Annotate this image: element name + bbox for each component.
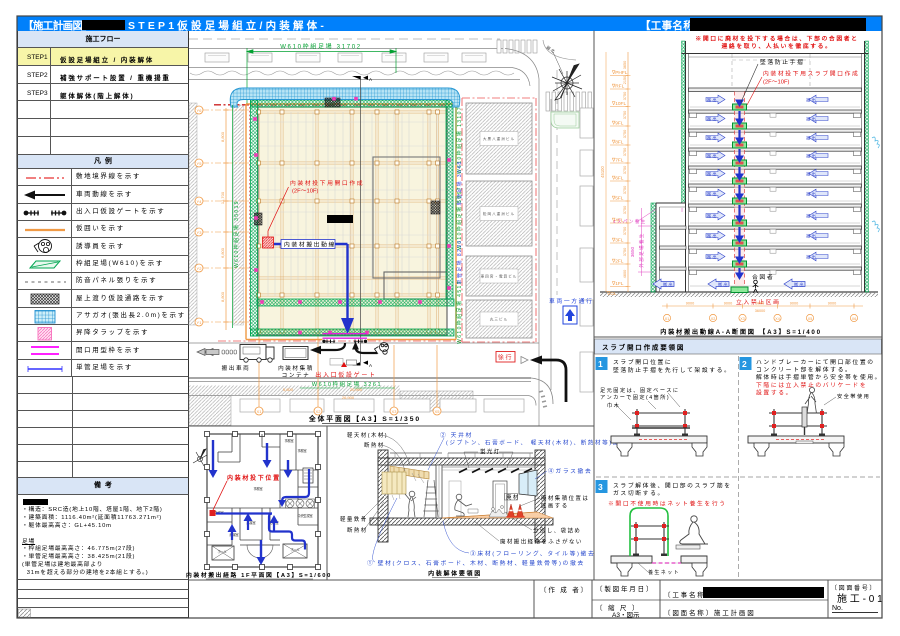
svg-text:12,700: 12,700 xyxy=(220,191,225,204)
svg-text:④ガラス撤去: ④ガラス撤去 xyxy=(548,467,592,475)
svg-text:搬出: 搬出 xyxy=(806,170,817,177)
svg-text:X5: X5 xyxy=(808,317,812,321)
svg-text:X5: X5 xyxy=(435,409,441,414)
svg-text:搬出: 搬出 xyxy=(806,134,817,141)
svg-text:ハンドブレーカーにて開口部位置の: ハンドブレーカーにて開口部位置の xyxy=(756,358,875,366)
svg-text:∇1FL: ∇1FL xyxy=(611,281,624,287)
svg-text:大黒八重洲ビル: 大黒八重洲ビル xyxy=(483,136,515,141)
svg-text:W610枠組足場 35019: W610枠組足場 35019 xyxy=(233,200,240,268)
svg-text:搬出車両: 搬出車両 xyxy=(222,364,251,372)
svg-text:スラブ開口作成要領図: スラブ開口作成要領図 xyxy=(602,343,685,352)
svg-text:ガス切断する。: ガス切断する。 xyxy=(613,489,665,497)
svg-text:搬出: 搬出 xyxy=(707,170,718,177)
svg-text:墜落防止手摺: 墜落防止手摺 xyxy=(760,58,805,66)
svg-text:2150: 2150 xyxy=(623,76,627,84)
svg-text:軽量鉄骨: 軽量鉄骨 xyxy=(340,515,368,523)
svg-text:2: 2 xyxy=(742,359,749,369)
svg-text:連絡を取り、人払いを徹底する。: 連絡を取り、人払いを徹底する。 xyxy=(721,42,832,50)
svg-text:② 天井材: ② 天井材 xyxy=(440,431,473,439)
svg-text:スラブ解体後、開口部のスラブ筋を: スラブ解体後、開口部のスラブ筋を xyxy=(613,482,732,490)
svg-text:区画する: 区画する xyxy=(541,503,569,510)
svg-text:単管足場 8230: 単管足場 8230 xyxy=(456,239,463,284)
svg-text:∇4FL: ∇4FL xyxy=(611,218,624,224)
svg-text:3650: 3650 xyxy=(630,246,635,257)
svg-text:出入口仮設ゲート: 出入口仮設ゲート xyxy=(315,371,376,379)
svg-text:徐行: 徐行 xyxy=(498,354,513,362)
svg-text:搬出: 搬出 xyxy=(806,152,817,159)
svg-text:1: 1 xyxy=(598,359,605,369)
svg-text:軽天材(木材): 軽天材(木材) xyxy=(347,431,388,439)
svg-text:搬出: 搬出 xyxy=(707,212,718,219)
svg-text:∇9FL: ∇9FL xyxy=(611,121,624,127)
svg-text:X6: X6 xyxy=(852,317,856,321)
svg-text:搬出: 搬出 xyxy=(718,281,729,288)
svg-text:コンテナ: コンテナ xyxy=(282,372,311,379)
svg-text:∇PHFL: ∇PHFL xyxy=(611,70,628,76)
svg-text:搬出: 搬出 xyxy=(707,190,718,197)
svg-text:搬出: 搬出 xyxy=(806,253,817,260)
svg-text:内装材搬出経路 1F平面図【A3】S=1/600: 内装材搬出経路 1F平面図【A3】S=1/600 xyxy=(186,571,332,579)
svg-text:(2F〜10F): (2F〜10F) xyxy=(763,80,789,86)
svg-text:X1: X1 xyxy=(257,409,263,414)
svg-text:9000: 9000 xyxy=(828,302,836,306)
svg-text:※開口不使用時はネット養生を行う: ※開口不使用時はネット養生を行う xyxy=(608,500,727,508)
svg-text:① 壁材(クロス、石膏ボード、木材、断熱材、軽量鉄骨等)の撤: ① 壁材(クロス、石膏ボード、木材、断熱材、軽量鉄骨等)の撤去 xyxy=(367,559,585,567)
svg-text:3750: 3750 xyxy=(623,130,627,138)
svg-text:Y2: Y2 xyxy=(197,266,203,271)
svg-text:搬出: 搬出 xyxy=(707,134,718,141)
svg-text:Y1: Y1 xyxy=(197,320,203,325)
svg-text:断熱材: 断熱材 xyxy=(347,526,368,534)
svg-text:搬出: 搬出 xyxy=(806,232,817,239)
svg-text:∇3FL: ∇3FL xyxy=(611,238,624,244)
svg-text:廃材集積位置は: 廃材集積位置は xyxy=(541,494,589,502)
svg-text:内装材搬出動線: 内装材搬出動線 xyxy=(284,241,336,249)
svg-text:3750: 3750 xyxy=(623,148,627,156)
svg-text:丸三ビル: 丸三ビル xyxy=(490,317,508,322)
svg-text:3750: 3750 xyxy=(623,248,627,256)
svg-text:X1: X1 xyxy=(665,317,669,321)
svg-text:スラブ開口位置に: スラブ開口位置に xyxy=(613,358,672,366)
svg-text:3750: 3750 xyxy=(623,92,627,100)
svg-text:事務室: 事務室 xyxy=(254,486,263,491)
svg-text:3: 3 xyxy=(598,482,605,492)
svg-text:A: A xyxy=(369,363,372,368)
svg-text:設置する。: 設置する。 xyxy=(756,389,793,397)
svg-text:内装材搬出動線A-A断面図 【A3】S=1/400: 内装材搬出動線A-A断面図 【A3】S=1/400 xyxy=(660,328,822,336)
svg-text:(2F〜10F): (2F〜10F) xyxy=(292,189,318,195)
svg-text:(ジプトン、石膏ボード、 軽天材(木材)、断熱材等)撤去: (ジプトン、石膏ボード、 軽天材(木材)、断熱材等)撤去 xyxy=(446,439,627,447)
svg-text:東四宮・電算ビル: 東四宮・電算ビル xyxy=(481,274,518,279)
svg-text:搬出: 搬出 xyxy=(707,96,718,103)
svg-text:車両一方通行: 車両一方通行 xyxy=(549,297,594,305)
svg-text:A: A xyxy=(369,77,372,82)
svg-text:搬出: 搬出 xyxy=(707,253,718,260)
svg-text:∇6FL: ∇6FL xyxy=(611,176,624,182)
svg-text:養生ネット: 養生ネット xyxy=(648,569,680,576)
svg-text:松岡八重洲ビル: 松岡八重洲ビル xyxy=(483,211,515,216)
svg-text:※開口に廃材を投下する場合は、下部の合図者と: ※開口に廃材を投下する場合は、下部の合図者と xyxy=(695,35,858,43)
svg-text:8,800: 8,800 xyxy=(220,131,225,142)
svg-text:内装解体要領図: 内装解体要領図 xyxy=(428,570,482,578)
svg-text:∇10FL: ∇10FL xyxy=(611,101,626,107)
svg-text:3750: 3750 xyxy=(623,111,627,119)
svg-text:3750: 3750 xyxy=(623,227,627,235)
svg-text:内装材集積: 内装材集積 xyxy=(278,364,314,372)
svg-text:9000: 9000 xyxy=(724,302,732,306)
svg-text:搬出: 搬出 xyxy=(806,115,817,122)
svg-text:3750: 3750 xyxy=(623,166,627,174)
svg-text:巾木: 巾木 xyxy=(607,401,620,409)
svg-text:墜落防止手摺を先行して架設する。: 墜落防止手摺を先行して架設する。 xyxy=(613,366,732,374)
svg-text:全体平面図【A3】S=1/350: 全体平面図【A3】S=1/350 xyxy=(308,414,421,423)
svg-text:事務室: 事務室 xyxy=(285,438,294,443)
svg-text:ホール: ホール xyxy=(291,547,301,552)
svg-text:搬出: 搬出 xyxy=(806,96,817,103)
svg-text:内装材投下用スラブ開口作成: 内装材投下用スラブ開口作成 xyxy=(763,70,859,78)
svg-text:3650: 3650 xyxy=(623,61,627,69)
svg-text:Y3: Y3 xyxy=(197,230,203,235)
svg-text:∇8FL: ∇8FL xyxy=(611,140,624,146)
svg-text:給湯室: 給湯室 xyxy=(230,532,239,537)
svg-text:X3: X3 xyxy=(392,409,398,414)
svg-text:コンクリート部を解体する。: コンクリート部を解体する。 xyxy=(756,366,852,374)
svg-text:分別し、袋詰め: 分別し、袋詰め xyxy=(533,527,581,535)
svg-text:3750: 3750 xyxy=(623,186,627,194)
svg-text:X4: X4 xyxy=(775,317,779,321)
svg-text:足元固定は、固定ベースに: 足元固定は、固定ベースに xyxy=(600,386,680,394)
svg-text:∇7FL: ∇7FL xyxy=(611,158,624,164)
svg-text:6,800: 6,800 xyxy=(220,247,225,258)
svg-text:X3: X3 xyxy=(740,317,744,321)
svg-text:事務室: 事務室 xyxy=(298,448,307,453)
svg-text:5,600: 5,600 xyxy=(283,387,294,392)
svg-text:W610枠組足場 4517: W610枠組足場 4517 xyxy=(456,280,463,344)
svg-text:搬出: 搬出 xyxy=(663,281,674,288)
svg-text:ホール: ホール xyxy=(218,549,228,554)
svg-text:内装材投下用開口作成: 内装材投下用開口作成 xyxy=(290,179,364,187)
svg-text:アンカーで固定(4箇所): アンカーで固定(4箇所) xyxy=(600,393,670,401)
svg-text:X2: X2 xyxy=(316,409,322,414)
svg-text:∇5FL: ∇5FL xyxy=(611,196,624,202)
svg-text:∇GL: ∇GL xyxy=(606,291,617,297)
svg-text:9000: 9000 xyxy=(686,302,694,306)
svg-text:搬出: 搬出 xyxy=(794,281,805,288)
svg-text:9000: 9000 xyxy=(790,302,798,306)
svg-text:搬出: 搬出 xyxy=(806,190,817,197)
svg-text:3750: 3750 xyxy=(623,206,627,214)
svg-text:搬出: 搬出 xyxy=(707,152,718,159)
svg-text:③床材(フローリング、タイル等)撤去: ③床材(フローリング、タイル等)撤去 xyxy=(470,550,595,558)
svg-text:Y4: Y4 xyxy=(197,199,203,204)
svg-text:中央監視室: 中央監視室 xyxy=(298,513,313,518)
svg-text:W610枠組足場 3261: W610枠組足場 3261 xyxy=(312,380,382,388)
svg-text:4600: 4600 xyxy=(623,270,627,278)
svg-text:搬出: 搬出 xyxy=(707,232,718,239)
svg-text:W610枠組足場 31702: W610枠組足場 31702 xyxy=(280,43,362,51)
svg-text:搬出: 搬出 xyxy=(806,212,817,219)
svg-text:廃材搬出経路をふさがない: 廃材搬出経路をふさがない xyxy=(500,538,583,546)
svg-text:8,800: 8,800 xyxy=(220,291,225,302)
svg-text:Y5: Y5 xyxy=(197,161,203,166)
svg-text:26,900: 26,900 xyxy=(342,395,355,400)
svg-text:9000: 9000 xyxy=(756,302,764,306)
svg-text:Y6: Y6 xyxy=(197,108,203,113)
svg-text:45100: 45100 xyxy=(600,166,605,178)
svg-text:搬出: 搬出 xyxy=(707,115,718,122)
svg-text:内装材投下位置: 内装材投下位置 xyxy=(227,474,281,482)
svg-text:安全帯使用: 安全帯使用 xyxy=(837,392,870,400)
svg-text:X2: X2 xyxy=(711,317,715,321)
svg-text:36000: 36000 xyxy=(755,309,766,313)
svg-text:解体時は手摺単管から安全帯を使用。: 解体時は手摺単管から安全帯を使用。 xyxy=(756,373,882,381)
svg-text:蛍光灯: 蛍光灯 xyxy=(480,448,501,456)
svg-text:∇2FL: ∇2FL xyxy=(611,259,624,265)
